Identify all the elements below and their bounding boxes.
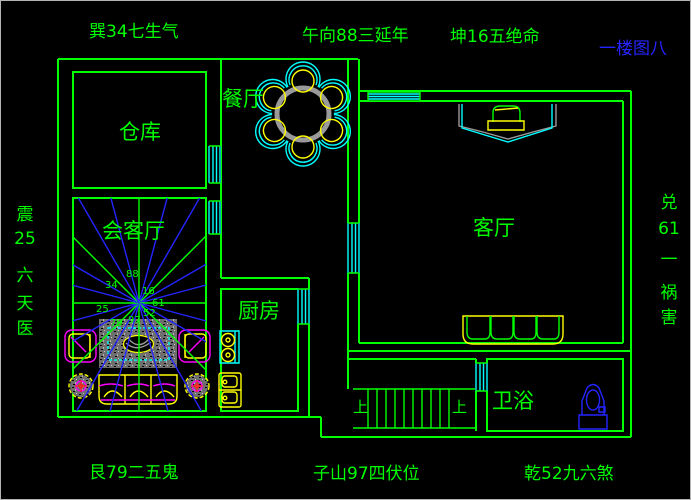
label-left-char: 六 <box>17 266 34 286</box>
room-label-bath: 卫浴 <box>492 389 534 413</box>
stair-treads <box>368 389 449 428</box>
label-top-southeast: 巽34七生气 <box>89 22 179 42</box>
cad-floorplan-canvas: 34 88 16 25 61 52 97 79 巽34七生气 午向88三延年 坤… <box>0 0 691 500</box>
fan-number: 97 <box>128 315 141 326</box>
label-top-south: 午向88三延年 <box>302 26 409 46</box>
fan-number: 88 <box>126 269 139 280</box>
living-room-sofa <box>463 316 563 344</box>
label-left-char: 医 <box>17 319 34 339</box>
outer-walls <box>58 59 631 437</box>
fan-number: 79 <box>110 318 123 329</box>
kitchen-sink <box>219 373 241 407</box>
tv-unit <box>459 104 556 142</box>
label-bottom-northeast: 艮79二五鬼 <box>89 463 179 483</box>
label-right-char: 61 <box>658 219 680 239</box>
door-bathroom <box>475 363 488 391</box>
fan-number: 34 <box>105 280 118 291</box>
label-right-char: 兑 <box>661 193 678 213</box>
window-reception-wall <box>208 201 221 234</box>
window-living-left-wall <box>347 223 360 273</box>
label-right-char: 害 <box>661 308 678 328</box>
room-label-storage: 仓库 <box>119 120 161 144</box>
stairs-up-label-left: 上 <box>353 398 368 416</box>
fengshui-fan-rays <box>2 166 276 440</box>
window-living-top-wall <box>368 92 420 101</box>
label-right-char: 一 <box>661 250 678 270</box>
toilet <box>579 385 607 430</box>
stove <box>220 331 239 363</box>
room-label-dining: 餐厅 <box>222 87 264 111</box>
fan-number: 25 <box>96 304 109 315</box>
label-bottom-northwest: 乾52九六煞 <box>524 464 614 484</box>
stairs-up-label-right: 上 <box>452 398 467 416</box>
label-left-char: 震 <box>17 205 34 225</box>
drawing-title: 一楼图八 <box>599 39 667 59</box>
floorplan-drawing: 34 88 16 25 61 52 97 79 巽34七生气 午向88三延年 坤… <box>1 1 690 499</box>
room-label-reception: 会客厅 <box>102 219 165 243</box>
fan-number: 16 <box>142 286 155 297</box>
label-left-char: 25 <box>14 229 36 249</box>
room-label-kitchen: 厨房 <box>238 299 280 323</box>
room-label-living: 客厅 <box>473 216 515 240</box>
label-bottom-north: 子山97四伏位 <box>313 464 420 484</box>
label-right-char: 祸 <box>661 283 678 303</box>
label-top-southwest: 坤16五绝命 <box>450 27 540 47</box>
window-kitchen-wall <box>297 289 310 324</box>
armchair-left <box>65 330 96 362</box>
label-left-char: 天 <box>17 294 34 314</box>
dining-table-set <box>249 62 356 166</box>
fan-number: 52 <box>143 308 156 319</box>
window-storage-wall <box>208 146 221 183</box>
